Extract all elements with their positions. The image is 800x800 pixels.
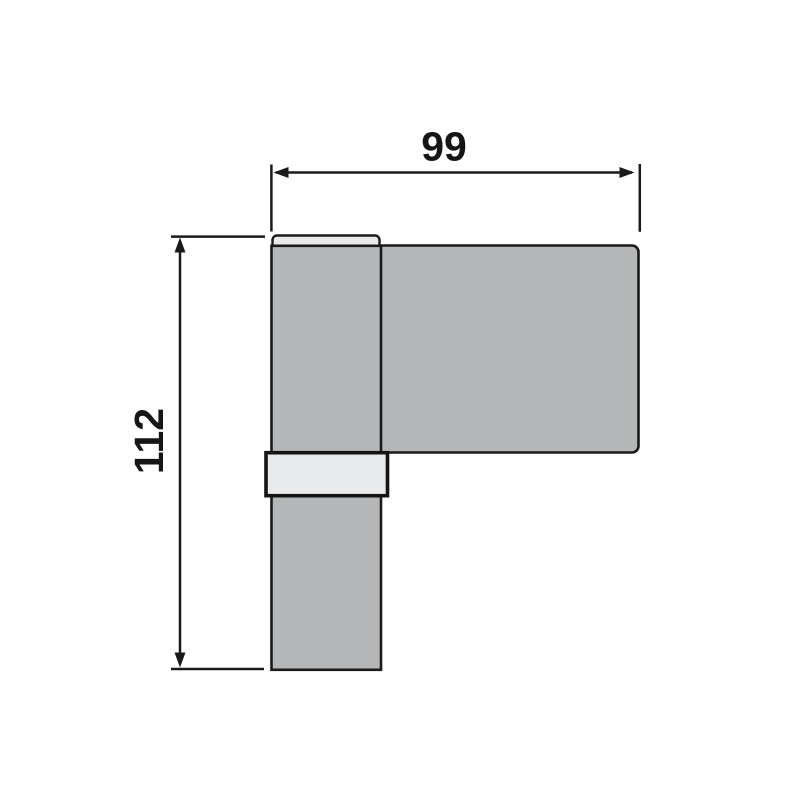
svg-text:112: 112: [126, 408, 172, 474]
svg-text:99: 99: [421, 124, 467, 170]
